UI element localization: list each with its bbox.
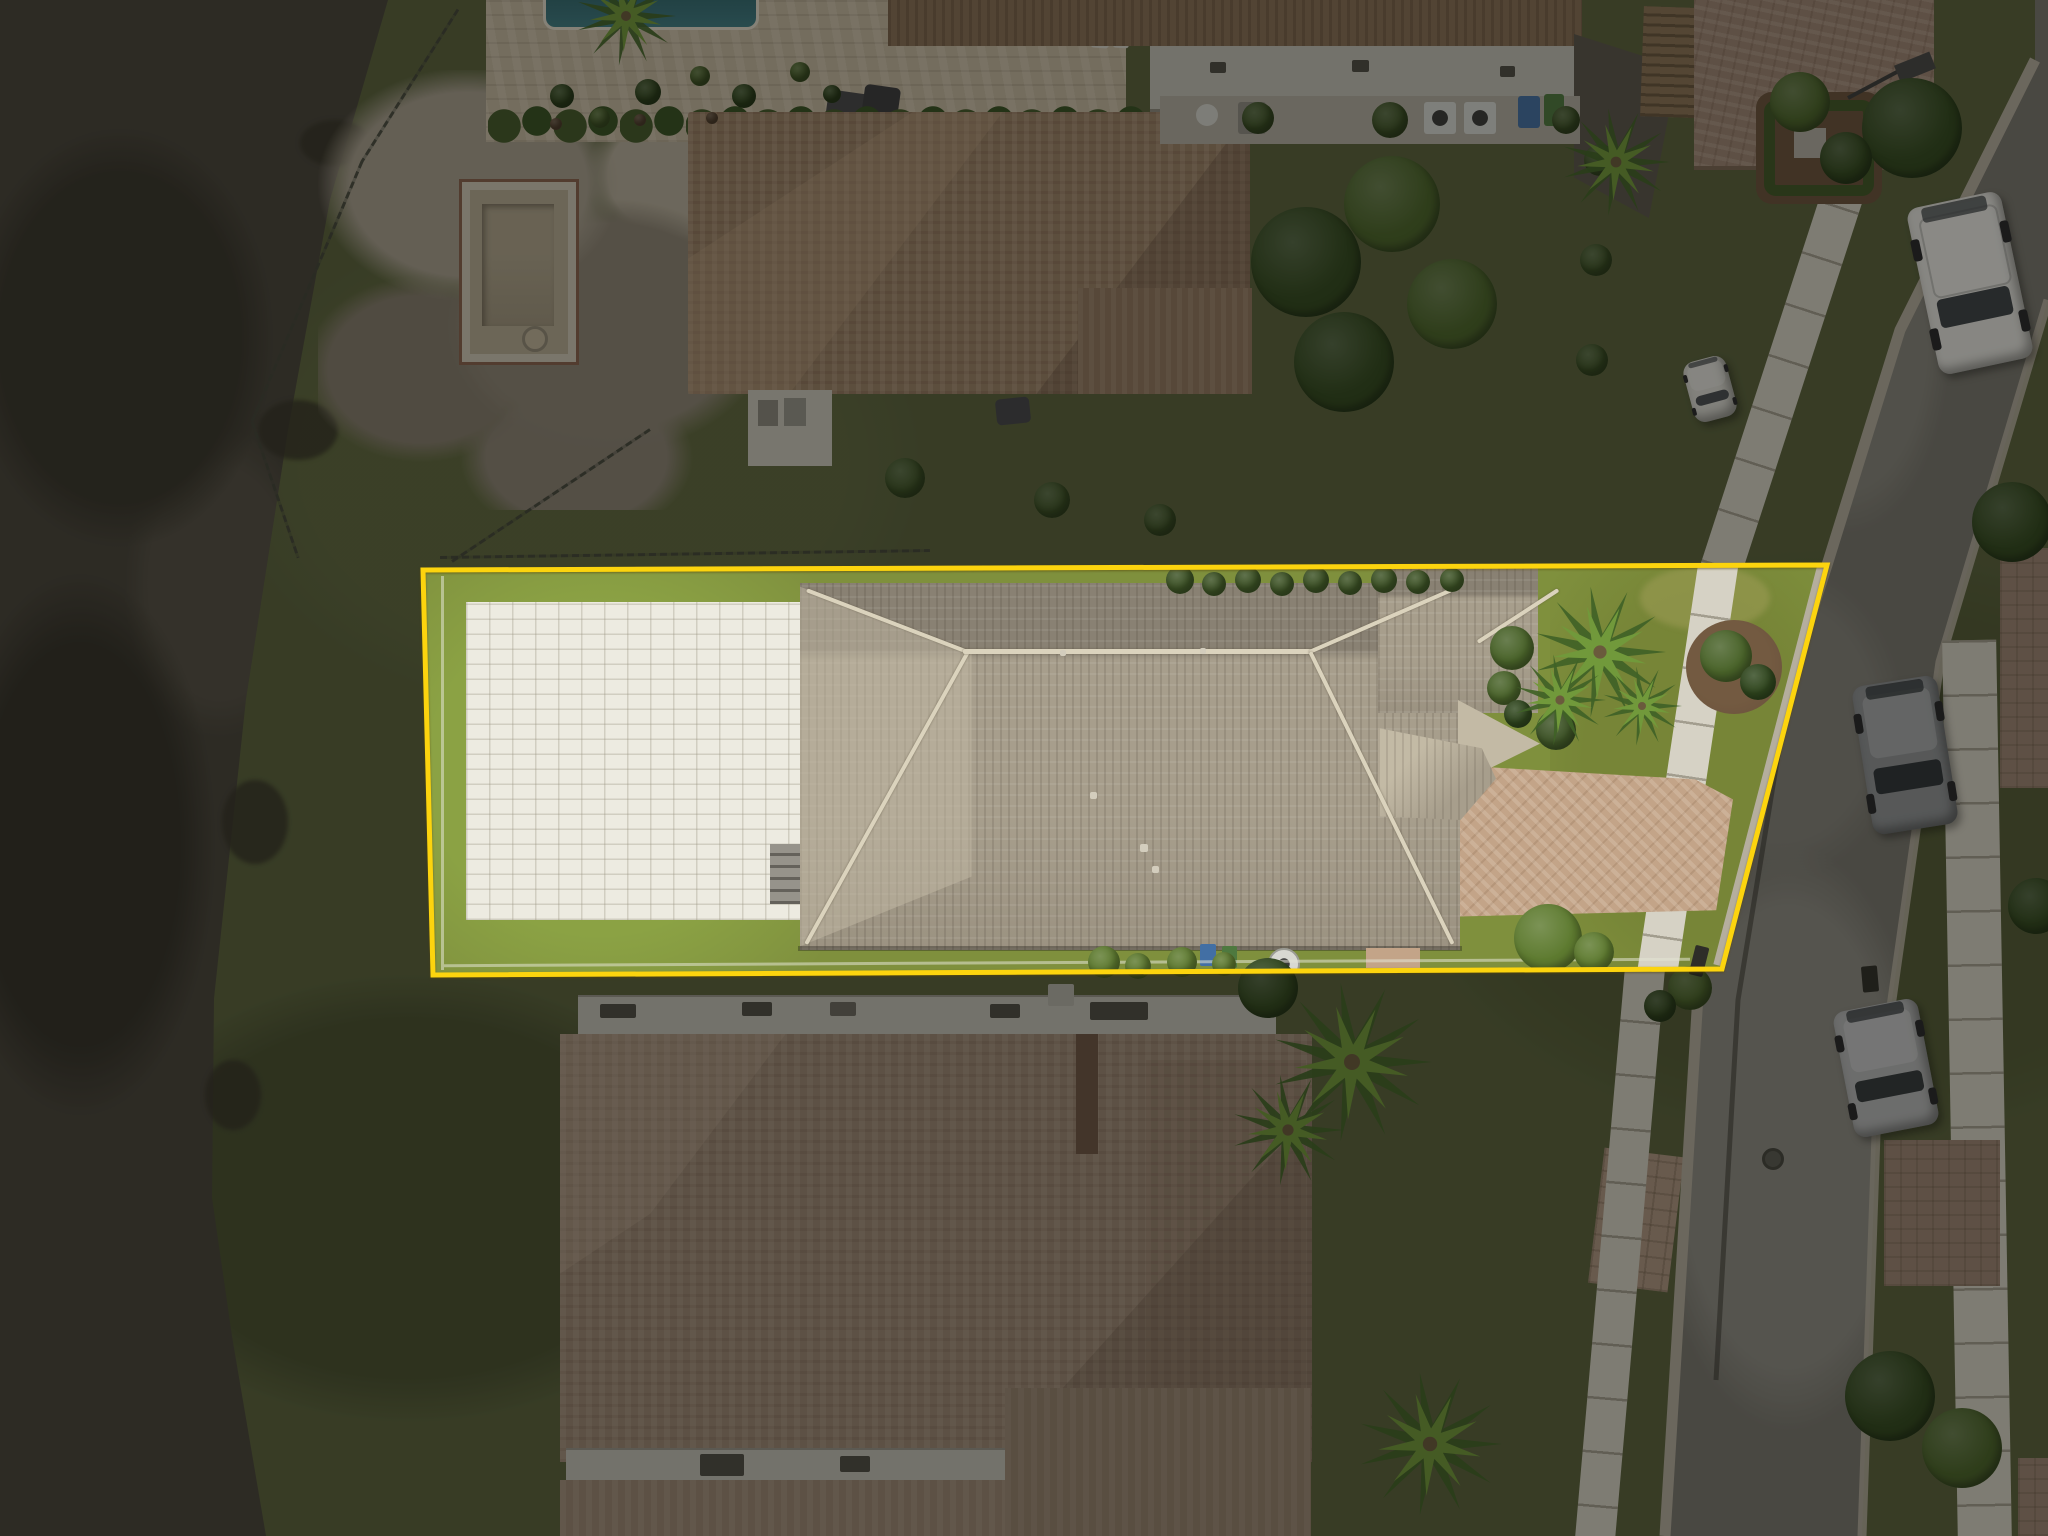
bush [550, 118, 562, 130]
ac-unit [1424, 102, 1456, 134]
roof-vent [990, 1004, 1020, 1018]
bush [1576, 344, 1608, 376]
bush [1034, 482, 1070, 518]
bush [1125, 953, 1151, 979]
manhole-cover [1762, 1148, 1784, 1170]
roof-vent-cap [1152, 866, 1159, 873]
empty-pool-interior [482, 204, 554, 326]
bush [1303, 567, 1329, 593]
paver-driveway [1460, 764, 1740, 918]
bush [1770, 72, 1830, 132]
roof-vent [1352, 60, 1369, 72]
main-house-roof [800, 583, 1460, 950]
roof-vent-cap [1060, 650, 1066, 656]
roof-vent [742, 1002, 772, 1016]
palm-tree [1562, 108, 1670, 216]
roof-vent [700, 1454, 744, 1476]
paver-apron [2018, 1458, 2048, 1536]
palm-tree [1232, 1074, 1344, 1186]
palm-tree [576, 0, 676, 66]
roof-vent [1210, 62, 1226, 73]
bush [635, 79, 661, 105]
aerial-photo [0, 0, 2048, 1536]
roof-vent-cap [1200, 648, 1206, 654]
neighbor-roof-gable [1078, 288, 1252, 394]
eave-shadow [798, 946, 1462, 951]
bush [1212, 952, 1236, 976]
backyard-concrete-pad [748, 390, 832, 466]
bush [1407, 259, 1497, 349]
bush [1251, 207, 1361, 317]
roof-vent [1090, 1002, 1148, 1020]
bush [1440, 568, 1464, 592]
empty-pool-shell [462, 182, 576, 362]
bush [885, 458, 925, 498]
bush [1338, 571, 1362, 595]
bush [1344, 156, 1440, 252]
roof-ridge [963, 649, 1313, 654]
bush [1514, 904, 1582, 972]
bush [1371, 567, 1397, 593]
bush [1166, 566, 1194, 594]
bush [1862, 78, 1962, 178]
bush [1740, 664, 1776, 700]
bush [706, 112, 718, 124]
side-paver-patch [1366, 948, 1420, 968]
lot-fence-left [441, 576, 444, 970]
pool-deck [466, 602, 800, 920]
neighbor-roof-strip [888, 0, 1582, 46]
paver-apron [1884, 1140, 2000, 1286]
roof-vent [840, 1456, 870, 1472]
bush [1294, 312, 1394, 412]
bush [1820, 132, 1872, 184]
bush [1202, 572, 1226, 596]
bush [1235, 567, 1261, 593]
chimney [1048, 984, 1074, 1006]
roof-vent-cap [1140, 844, 1148, 852]
roof-vent [1500, 66, 1515, 77]
shore-reeds [222, 780, 288, 864]
equipment-pad [1160, 96, 1580, 144]
empty-spa-circle [522, 326, 548, 352]
bush [1088, 946, 1120, 978]
paver-apron [2000, 548, 2048, 788]
palm-tree [1514, 654, 1606, 746]
bush [1144, 504, 1176, 536]
pool-pump [1196, 104, 1218, 126]
bush [790, 62, 810, 82]
bush [690, 66, 710, 86]
roof-vent [830, 1002, 856, 1016]
bush [1922, 1408, 2002, 1488]
ac-unit [1464, 102, 1496, 134]
bush [1372, 102, 1408, 138]
bush [1972, 482, 2048, 562]
shore-reeds [205, 1060, 261, 1130]
storm-drain [1861, 965, 1879, 992]
bush [1406, 570, 1430, 594]
bush [732, 84, 756, 108]
bush [1574, 932, 1614, 972]
bush [823, 85, 841, 103]
palm-tree [1358, 1372, 1502, 1516]
bush [1580, 244, 1612, 276]
bottom-neighbor-roof-lower-right [1005, 1388, 1311, 1536]
bush [1644, 990, 1676, 1022]
roof-vent-cap [1090, 792, 1097, 799]
backyard-grill [995, 396, 1032, 425]
bush [1167, 947, 1197, 977]
bush [1242, 102, 1274, 134]
bush [550, 84, 574, 108]
bush [634, 114, 646, 126]
bush [590, 108, 610, 128]
roof-vent [600, 1004, 636, 1018]
blue-trash-bin [1518, 96, 1540, 128]
bush [1270, 572, 1294, 596]
bottom-house-parapet [566, 1448, 1010, 1484]
palm-tree [1602, 666, 1682, 746]
bush [1845, 1351, 1935, 1441]
